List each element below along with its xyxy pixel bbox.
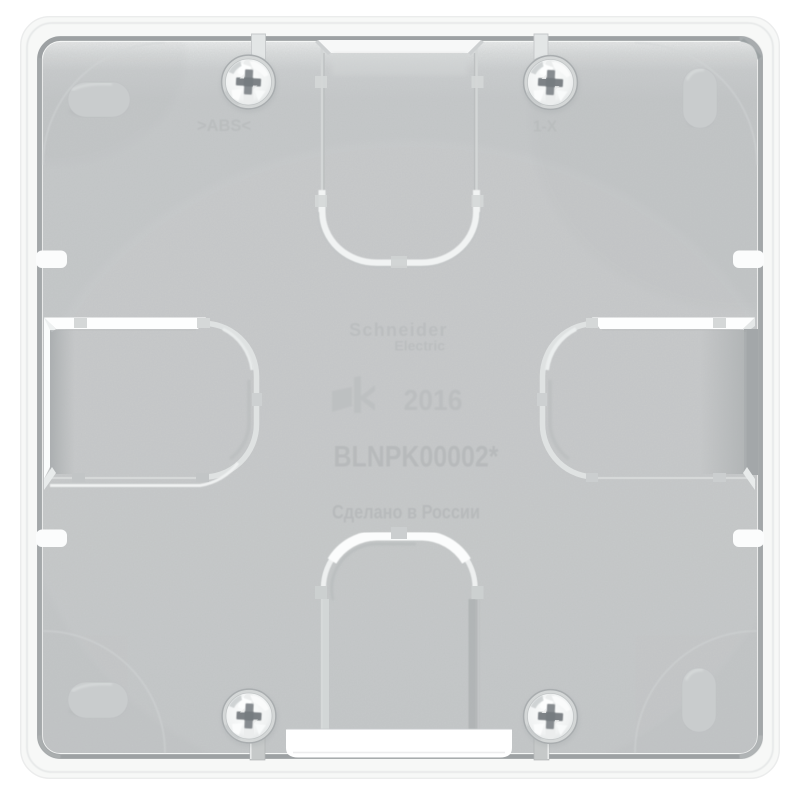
svg-text:BLNPK00002*: BLNPK00002* bbox=[334, 441, 499, 474]
svg-text:Electric: Electric bbox=[394, 338, 445, 354]
svg-text:>ABS<: >ABS< bbox=[197, 117, 251, 135]
svg-text:Сделано в России: Сделано в России bbox=[332, 503, 480, 524]
svg-text:1-X: 1-X bbox=[533, 119, 558, 136]
svg-text:2016: 2016 bbox=[404, 385, 463, 417]
